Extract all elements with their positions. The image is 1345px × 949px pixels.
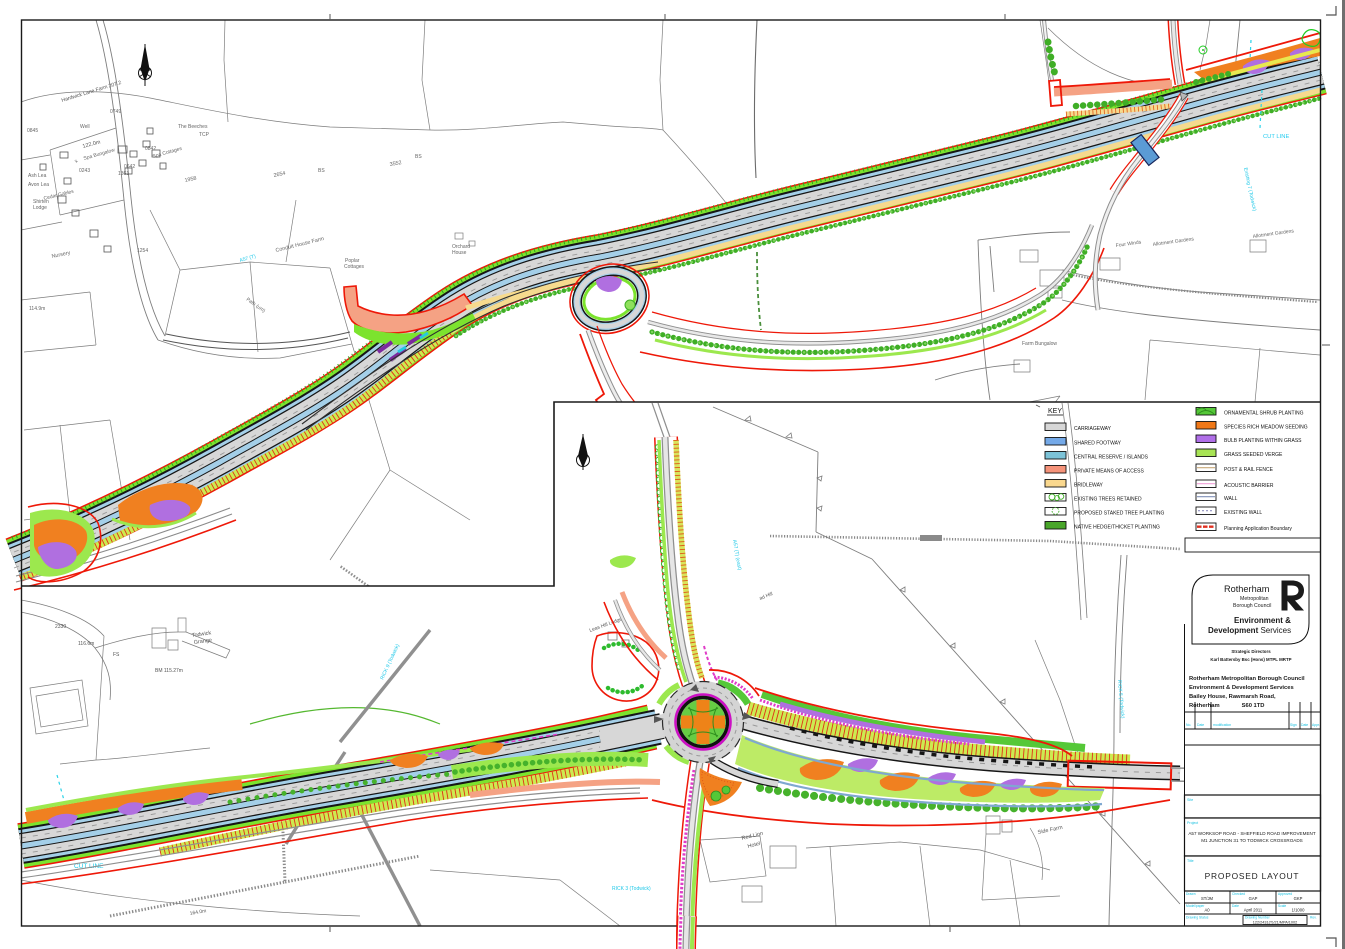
svg-text:ACOUSTIC BARRIER: ACOUSTIC BARRIER [1224, 483, 1274, 489]
svg-text:BS: BS [318, 168, 325, 174]
svg-text:Farm Bungalow: Farm Bungalow [1022, 341, 1057, 347]
svg-text:Lodge: Lodge [33, 205, 47, 211]
svg-text:TCP: TCP [199, 132, 210, 138]
svg-text:Strategic Directors: Strategic Directors [1231, 649, 1271, 654]
svg-text:Date: Date [1197, 723, 1204, 727]
svg-text:House: House [452, 250, 467, 256]
svg-text:BRIDLEWAY: BRIDLEWAY [1074, 483, 1104, 489]
svg-text:Sign: Sign [1290, 723, 1297, 727]
svg-text:SPECIES RICH MEADOW SEEDING: SPECIES RICH MEADOW SEEDING [1224, 425, 1308, 431]
svg-text:FS: FS [113, 652, 120, 658]
svg-text:No.: No. [1186, 723, 1191, 727]
svg-text:GKP: GKP [1294, 896, 1303, 901]
svg-text:Project: Project [1187, 821, 1198, 825]
svg-text:CENTRAL RESERVE / ISLANDS: CENTRAL RESERVE / ISLANDS [1074, 455, 1149, 461]
svg-text:Approved: Approved [1278, 892, 1292, 896]
svg-text:CUT LINE: CUT LINE [1263, 134, 1289, 140]
svg-text:122/2431(T)/21/MPA/1002: 122/2431(T)/21/MPA/1002 [1253, 921, 1297, 925]
svg-text:BM 115.27m: BM 115.27m [155, 668, 183, 674]
svg-text:NATIVE HEDGE/THICKET PLANTING: NATIVE HEDGE/THICKET PLANTING [1074, 525, 1160, 531]
svg-text:Drawing Status: Drawing Status [1186, 916, 1209, 920]
svg-text:Drawn: Drawn [1186, 892, 1196, 896]
svg-text:EXISTING WALL: EXISTING WALL [1224, 510, 1262, 516]
svg-text:116.6m: 116.6m [78, 641, 94, 647]
svg-text:KEY: KEY [1048, 408, 1062, 415]
svg-text:M1 JUNCTION 31 TO TODWICK CROS: M1 JUNCTION 31 TO TODWICK CROSSROADS [1201, 838, 1303, 843]
svg-text:Metropolitan: Metropolitan [1240, 596, 1269, 602]
svg-text:Drawing Number: Drawing Number [1245, 916, 1271, 920]
svg-text:1254: 1254 [137, 248, 148, 254]
svg-text:Environment & Development Serv: Environment & Development Services [1189, 685, 1294, 691]
svg-text:A0: A0 [1204, 908, 1210, 913]
svg-text:114.9m: 114.9m [29, 306, 45, 312]
svg-text:Scale: Scale [1278, 904, 1286, 908]
svg-text:Site: Site [1187, 798, 1193, 802]
svg-text:Rotherham Metropolitan Borough: Rotherham Metropolitan Borough Council [1189, 676, 1305, 682]
svg-text:BS: BS [415, 154, 422, 160]
svg-text:Development Services: Development Services [1208, 626, 1291, 635]
svg-text:BULB PLANTING WITHIN GRASS: BULB PLANTING WITHIN GRASS [1224, 438, 1302, 444]
svg-text:Borough Council: Borough Council [1233, 603, 1271, 609]
svg-text:0845: 0845 [27, 128, 38, 134]
svg-text:ORNAMENTAL SHRUB PLANTING: ORNAMENTAL SHRUB PLANTING [1224, 411, 1304, 417]
svg-text:The Beeches: The Beeches [178, 124, 208, 130]
svg-text:Appr.: Appr. [1312, 723, 1320, 727]
svg-text:EXISTING TREES RETAINED: EXISTING TREES RETAINED [1074, 497, 1142, 503]
svg-text:0642: 0642 [124, 164, 135, 170]
svg-text:Karl Battersby Bsc (Hons) MTPL: Karl Battersby Bsc (Hons) MTPL MRTP [1210, 657, 1291, 662]
svg-text:Rev.: Rev. [1310, 916, 1317, 920]
svg-text:Cottages: Cottages [344, 264, 365, 270]
svg-text:Date: Date [1232, 904, 1239, 908]
svg-text:SHARED FOOTWAY: SHARED FOOTWAY [1074, 441, 1122, 447]
svg-text:Environment &: Environment & [1234, 616, 1291, 625]
svg-text:Planning Application Boundary: Planning Application Boundary [1224, 526, 1292, 532]
svg-text:CARRIAGEWAY: CARRIAGEWAY [1074, 426, 1112, 432]
svg-text:Model/paper: Model/paper [1186, 904, 1205, 908]
svg-text:1/1000: 1/1000 [1292, 908, 1305, 913]
svg-text:PROPOSED LAYOUT: PROPOSED LAYOUT [1205, 871, 1300, 881]
svg-text:Avon Lea: Avon Lea [28, 182, 49, 188]
svg-text:PRIVATE MEANS OF ACCESS: PRIVATE MEANS OF ACCESS [1074, 469, 1144, 475]
svg-text:April 2011: April 2011 [1244, 908, 1263, 913]
svg-text:Well: Well [80, 124, 90, 130]
svg-text:PROPOSED STAKED TREE PLANTING: PROPOSED STAKED TREE PLANTING [1074, 511, 1165, 517]
svg-text:0243: 0243 [79, 168, 90, 174]
svg-text:GRASS SEEDED VERGE: GRASS SEEDED VERGE [1224, 452, 1283, 458]
svg-text:0842: 0842 [145, 146, 156, 152]
svg-text:0749: 0749 [110, 109, 121, 115]
svg-text:2330: 2330 [55, 624, 66, 630]
svg-text:Bailey House, Rawmarsh Road,: Bailey House, Rawmarsh Road, [1189, 694, 1276, 700]
svg-text:WALL: WALL [1224, 496, 1238, 502]
svg-text:Rotherham: Rotherham [1224, 584, 1270, 594]
svg-text:RICK 3 (Todwick): RICK 3 (Todwick) [612, 886, 651, 892]
svg-text:Title: Title [1187, 859, 1194, 863]
svg-text:GAP: GAP [1249, 896, 1258, 901]
svg-text:Ash Lea: Ash Lea [28, 173, 47, 179]
svg-text:ST/JM: ST/JM [1201, 896, 1214, 901]
svg-text:Checked: Checked [1232, 892, 1245, 896]
svg-text:modification: modification [1213, 723, 1231, 727]
svg-text:POST & RAIL FENCE: POST & RAIL FENCE [1224, 467, 1274, 473]
svg-text:1361: 1361 [118, 171, 129, 177]
svg-text:A57 WORKSOP ROAD - SHEFFIELD R: A57 WORKSOP ROAD - SHEFFIELD ROAD IMPROV… [1188, 831, 1315, 836]
svg-text:Date: Date [1301, 723, 1308, 727]
